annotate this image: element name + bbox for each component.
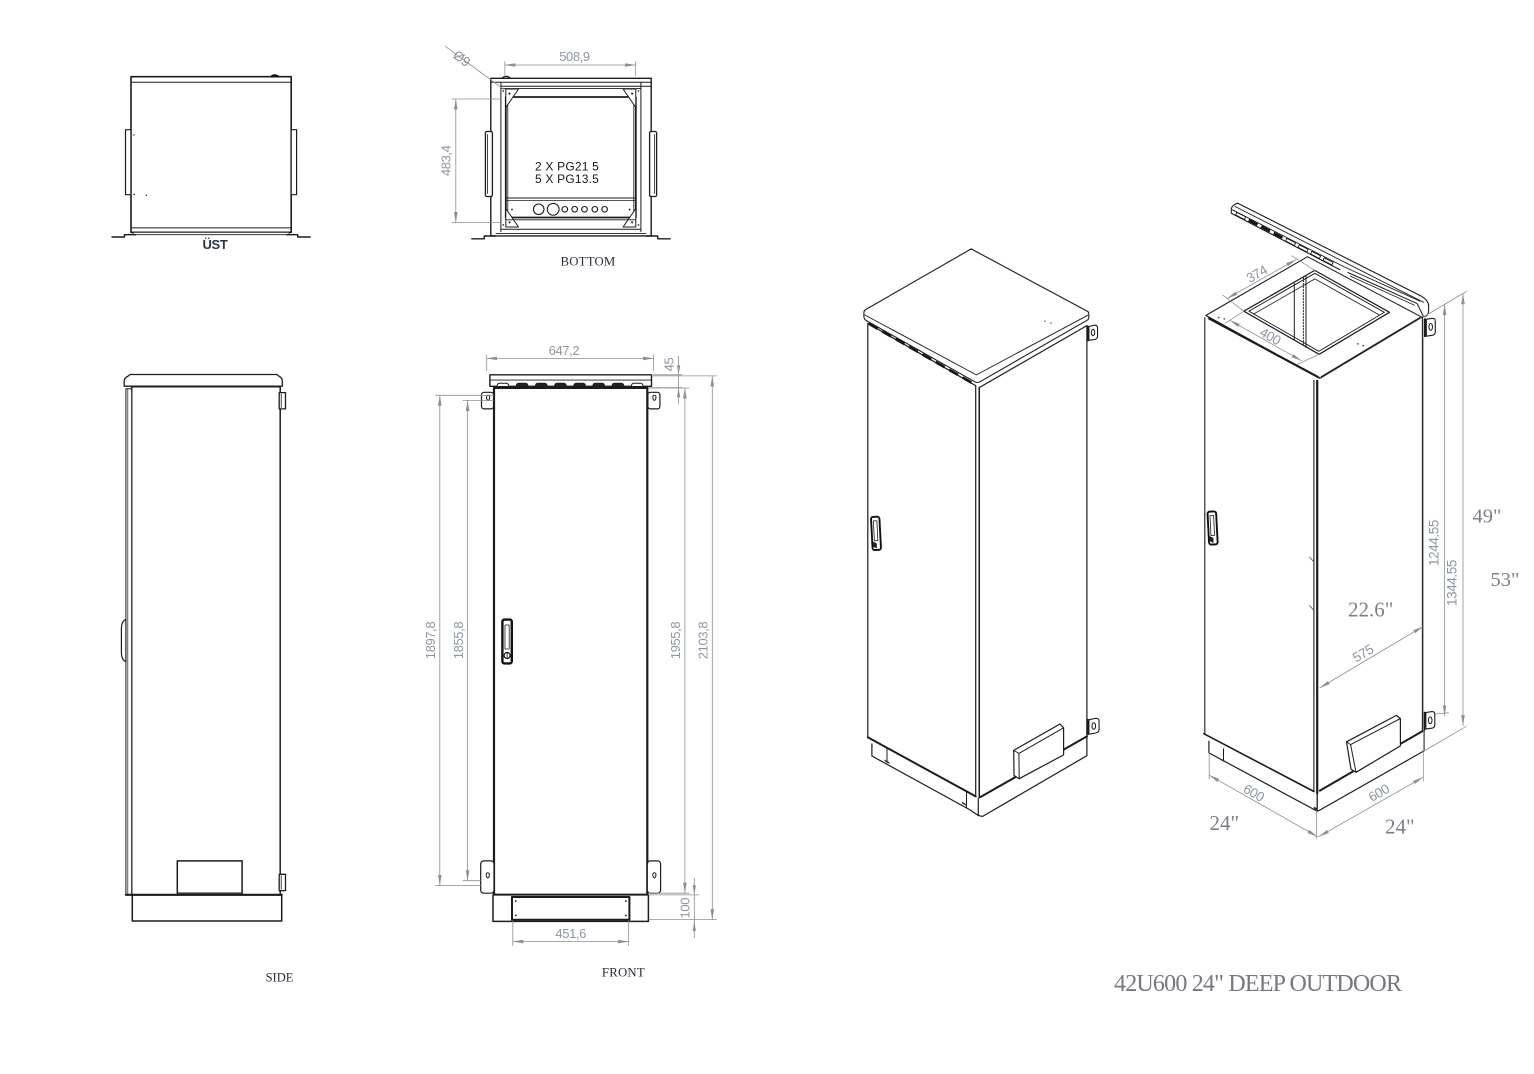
svg-text:647,2: 647,2	[549, 343, 580, 358]
svg-text:600: 600	[1366, 781, 1392, 805]
svg-text:1344.55: 1344.55	[1445, 560, 1460, 606]
svg-text:483,4: 483,4	[439, 145, 454, 176]
svg-text:ÜST: ÜST	[202, 237, 227, 252]
svg-text:508,9: 508,9	[559, 49, 590, 64]
svg-text:1955,8: 1955,8	[668, 622, 683, 660]
svg-text:42U600 24" DEEP OUTDOOR: 42U600 24" DEEP OUTDOOR	[1114, 971, 1402, 997]
svg-text:53": 53"	[1491, 569, 1520, 591]
svg-text:100: 100	[678, 898, 693, 919]
svg-text:22.6": 22.6"	[1348, 598, 1393, 622]
svg-text:1897,8: 1897,8	[423, 622, 438, 660]
svg-text:BOTTOM: BOTTOM	[561, 255, 616, 269]
svg-text:SIDE: SIDE	[266, 971, 294, 985]
svg-text:24": 24"	[1385, 815, 1415, 839]
svg-text:24": 24"	[1210, 811, 1240, 835]
svg-text:5 X PG13.5: 5 X PG13.5	[535, 172, 599, 186]
svg-text:Ø9: Ø9	[450, 47, 473, 69]
svg-text:FRONT: FRONT	[602, 966, 645, 980]
svg-text:49": 49"	[1473, 506, 1502, 528]
svg-text:600: 600	[1241, 781, 1267, 805]
svg-text:1855,8: 1855,8	[451, 622, 466, 660]
svg-text:575: 575	[1350, 642, 1376, 666]
svg-text:1244.55: 1244.55	[1426, 520, 1441, 566]
svg-text:451,6: 451,6	[555, 926, 586, 941]
svg-text:45: 45	[662, 358, 677, 372]
svg-text:2103,8: 2103,8	[696, 622, 711, 660]
